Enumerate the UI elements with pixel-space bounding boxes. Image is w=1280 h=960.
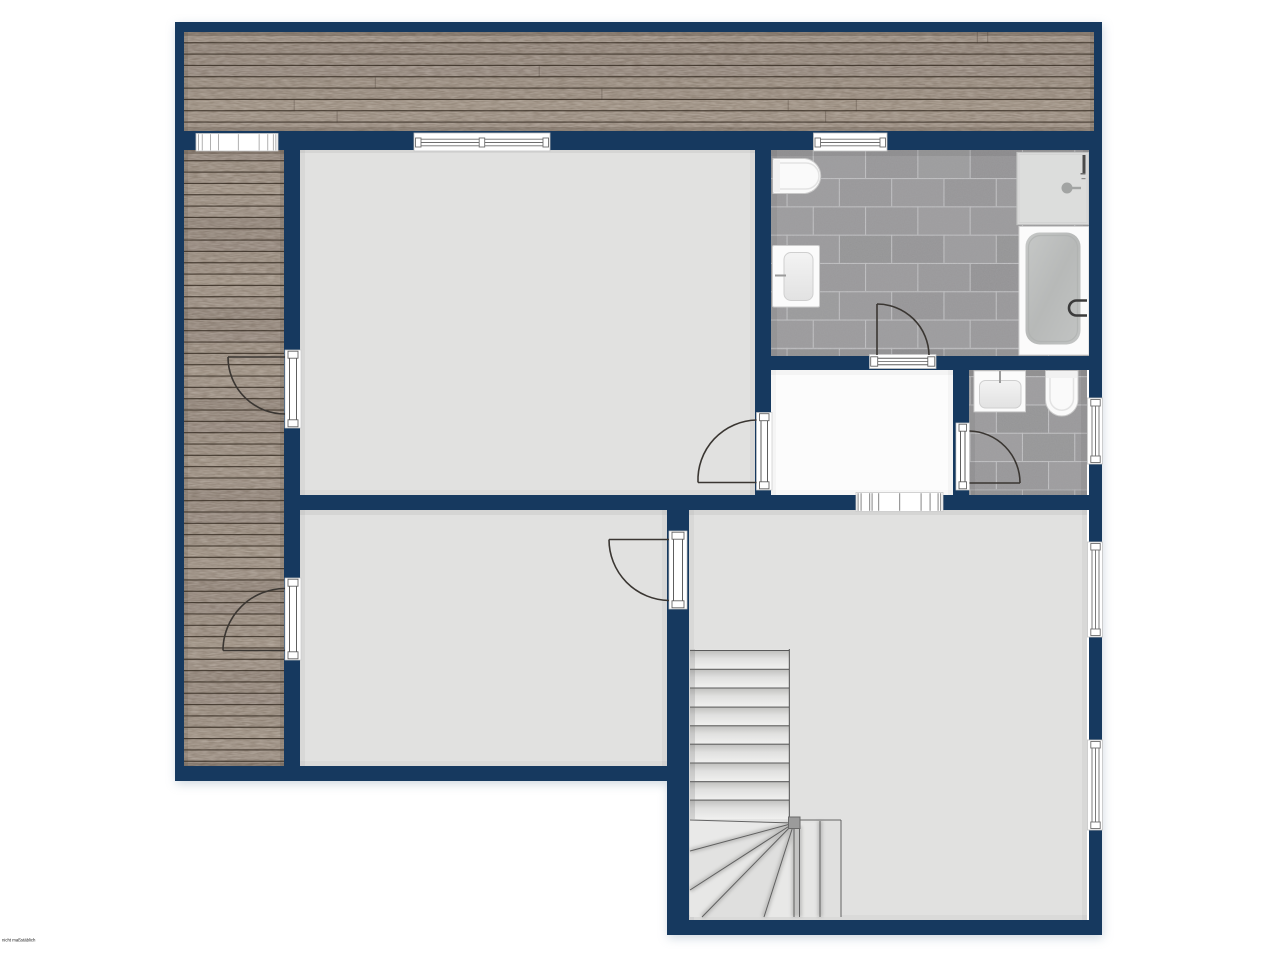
svg-text:nicht maßstäblich: nicht maßstäblich [2, 938, 36, 943]
